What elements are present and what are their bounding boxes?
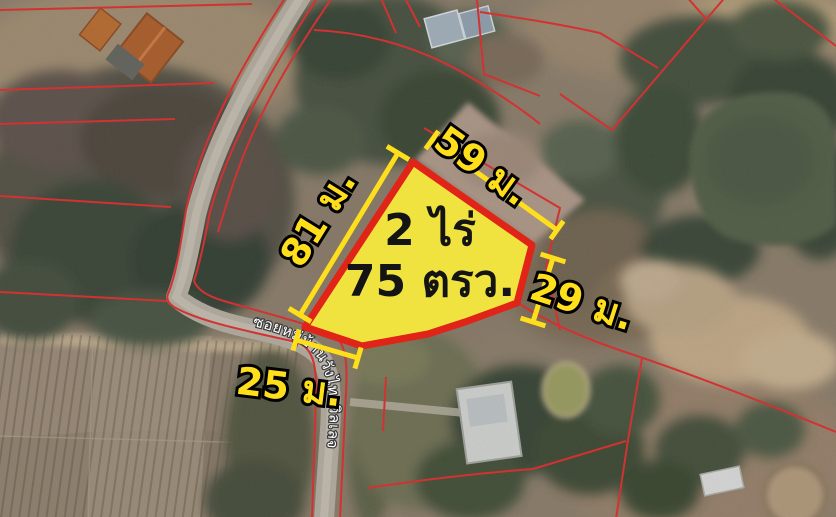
area-line2: 75 ตรว. <box>345 256 515 307</box>
area-label: 2 ไร่ 75 ตรว. <box>345 205 515 307</box>
satellite-map: ซอยหมู่บ้านวังไทรวิลเลจ <box>0 0 836 517</box>
area-line1: 2 ไร่ <box>345 205 515 256</box>
